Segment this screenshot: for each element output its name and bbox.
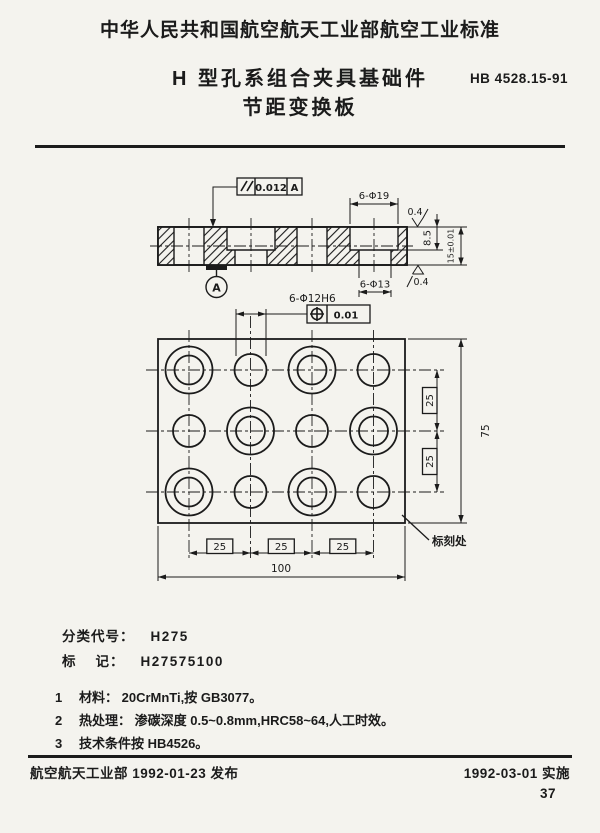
standard-code: HB 4528.15-91 [470, 71, 568, 86]
pitch-label: 25 [275, 542, 288, 553]
pitch-label: 25 [425, 394, 436, 407]
engineering-drawing: 0.012 A A 6-Φ19 6-Φ13 [0, 150, 600, 590]
plan-centerlines [146, 316, 444, 558]
parallelism-datum-ref: A [291, 183, 299, 194]
classification-value: H275 [151, 629, 189, 644]
roughness-bottom: 0.4 [407, 266, 429, 289]
note-text: 材料： 20CrMnTi,按 GB3077。 [79, 690, 262, 705]
dim-through-hole: 6-Φ13 [356, 266, 394, 297]
pitch-label: 25 [213, 542, 226, 553]
page-number: 37 [540, 786, 556, 801]
dim-total-width-label: 100 [271, 563, 291, 575]
dim-counterbore-label: 6-Φ19 [359, 191, 390, 202]
note-item: 1材料： 20CrMnTi,按 GB3077。 [55, 686, 394, 709]
datum-feature-symbol: A [206, 266, 227, 298]
classification-row: 分类代号：H275 [62, 625, 189, 645]
footer-divider [28, 755, 572, 758]
standard-org-line: 中华人民共和国航空航天工业部航空工业标准 [0, 15, 600, 42]
dim-depth-thickness: 8.5 15±0.01 [399, 214, 467, 265]
position-tolerance-value: 0.01 [334, 311, 359, 322]
dim-thickness-label: 15±0.01 [447, 229, 456, 264]
classification-label: 分类代号： [62, 629, 135, 644]
dim-pitch-horizontal: 25 25 25 [189, 539, 374, 556]
footer-effective: 1992-03-01 实施 [464, 762, 570, 782]
note-text: 技术条件按 HB4526。 [79, 736, 208, 751]
footer-issued: 航空航天工业部 1992-01-23 发布 [30, 762, 239, 782]
parallelism-value: 0.012 [255, 183, 287, 194]
marking-note-label: 标刻处 [431, 534, 467, 548]
marking-note: 标刻处 [402, 515, 467, 548]
roughness-bottom-value: 0.4 [413, 277, 428, 288]
pitch-label: 25 [425, 455, 436, 468]
parallelism-tolerance-frame: 0.012 A [210, 178, 302, 227]
technical-notes: 1材料： 20CrMnTi,按 GB3077。 2热处理： 渗碳深度 0.5~0… [55, 686, 394, 755]
note-number: 2 [55, 709, 79, 732]
plan-view [146, 316, 444, 558]
section-view [150, 218, 413, 274]
dim-total-height-label: 75 [480, 424, 492, 437]
marking-value: H27575100 [141, 654, 224, 669]
dim-through-hole-label: 6-Φ13 [360, 280, 391, 291]
note-number: 1 [55, 686, 79, 709]
marking-label: 标 记： [62, 654, 125, 669]
roughness-top: 0.4 [407, 207, 428, 227]
page-subtitle: 节距变换板 [0, 91, 600, 120]
standard-document-page: 中华人民共和国航空航天工业部航空工业标准 H 型孔系组合夹具基础件 HB 452… [0, 0, 600, 833]
pitch-label: 25 [336, 542, 349, 553]
note-text: 热处理： 渗碳深度 0.5~0.8mm,HRC58~64,人工时效。 [79, 713, 394, 728]
roughness-top-value: 0.4 [407, 207, 422, 218]
note-item: 3技术条件按 HB4526。 [55, 732, 394, 755]
dim-precision-hole-label: 6-Φ12H6 [289, 293, 336, 305]
note-item: 2热处理： 渗碳深度 0.5~0.8mm,HRC58~64,人工时效。 [55, 709, 394, 732]
header-divider [35, 145, 565, 148]
datum-label: A [212, 282, 221, 295]
dim-depth-label: 8.5 [423, 230, 434, 246]
note-number: 3 [55, 732, 79, 755]
marking-row: 标 记：H27575100 [62, 650, 224, 670]
position-tolerance-callout: 6-Φ12H6 0.01 [236, 293, 370, 356]
